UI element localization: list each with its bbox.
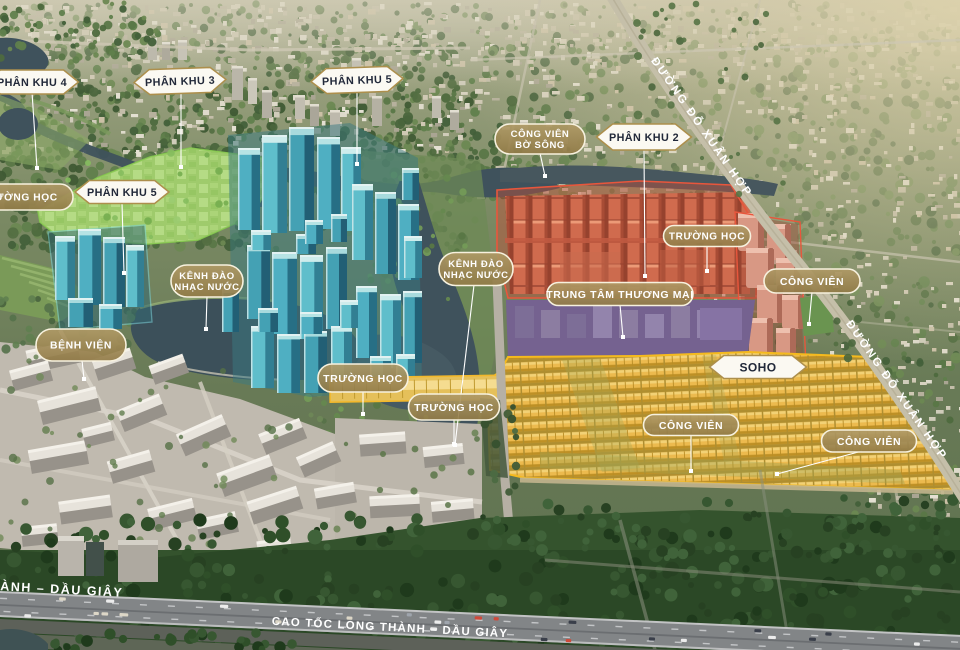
svg-text:CÔNG VIÊN: CÔNG VIÊN xyxy=(659,419,723,432)
svg-text:PHÂN KHU 5: PHÂN KHU 5 xyxy=(322,73,392,88)
svg-text:PHÂN KHU 5: PHÂN KHU 5 xyxy=(87,186,157,199)
svg-text:PHÂN KHU 3: PHÂN KHU 3 xyxy=(145,74,215,89)
svg-text:NHẠC NƯỚC: NHẠC NƯỚC xyxy=(174,281,239,293)
svg-text:CÔNG VIÊN: CÔNG VIÊN xyxy=(511,128,570,140)
svg-text:TRƯỜNG HỌC: TRƯỜNG HỌC xyxy=(669,230,745,243)
svg-text:TRƯỜNG HỌC: TRƯỜNG HỌC xyxy=(323,372,403,385)
svg-text:CÔNG VIÊN: CÔNG VIÊN xyxy=(780,275,844,288)
svg-text:TRUNG TÂM THƯƠNG MẠI: TRUNG TÂM THƯƠNG MẠI xyxy=(546,288,694,301)
svg-text:PHÂN KHU 2: PHÂN KHU 2 xyxy=(609,131,679,144)
svg-text:SOHO: SOHO xyxy=(740,360,777,374)
svg-text:BỆNH VIỆN: BỆNH VIỆN xyxy=(50,339,112,352)
svg-text:TRƯỜNG HỌC: TRƯỜNG HỌC xyxy=(414,401,494,414)
svg-text:KÊNH ĐÀO: KÊNH ĐÀO xyxy=(448,258,503,270)
svg-text:BỜ SÔNG: BỜ SÔNG xyxy=(515,139,565,151)
svg-text:NHẠC NƯỚC: NHẠC NƯỚC xyxy=(443,269,508,281)
svg-text:KÊNH ĐÀO: KÊNH ĐÀO xyxy=(179,270,234,282)
svg-text:CÔNG VIÊN: CÔNG VIÊN xyxy=(837,435,901,448)
svg-text:PHÂN KHU 4: PHÂN KHU 4 xyxy=(0,76,67,89)
svg-text:TRƯỜNG HỌC: TRƯỜNG HỌC xyxy=(0,191,58,204)
